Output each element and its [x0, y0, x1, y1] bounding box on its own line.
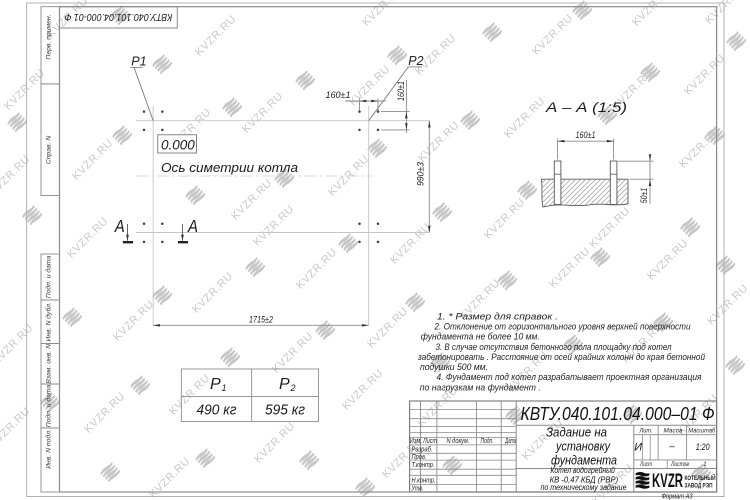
svg-text:P: P	[210, 376, 221, 393]
svg-text:Масштаб: Масштаб	[688, 427, 715, 435]
svg-text:160±1: 160±1	[576, 130, 596, 140]
svg-text:50±1: 50±1	[639, 188, 649, 204]
svg-text:490 кг: 490 кг	[197, 403, 237, 419]
svg-text:Масса: Масса	[664, 428, 683, 435]
svg-text:Н.контр.: Н.контр.	[412, 478, 436, 485]
svg-text:Подп.: Подп.	[481, 437, 494, 445]
svg-text:Справ. N: Справ. N	[46, 136, 53, 165]
svg-text:Инв. N дубл.: Инв. N дубл.	[45, 302, 53, 341]
svg-text:595 кг: 595 кг	[265, 403, 305, 419]
svg-text:1:20: 1:20	[696, 442, 710, 452]
svg-text:КВТУ.040.101.04.000–01 Ф: КВТУ.040.101.04.000–01 Ф	[521, 403, 715, 424]
svg-text:КОТЕЛЬНЫЙ: КОТЕЛЬНЫЙ	[685, 473, 716, 482]
svg-text:Пров.: Пров.	[412, 454, 427, 461]
svg-text:990±3: 990±3	[416, 162, 426, 186]
svg-text:Подп. и дата: Подп. и дата	[45, 256, 53, 299]
svg-text:P1: P1	[131, 55, 146, 69]
svg-text:Котел водогрейный: Котел водогрейный	[550, 466, 615, 475]
svg-text:Изм.: Изм.	[410, 438, 422, 445]
svg-text:Лист: Лист	[639, 461, 652, 468]
svg-text:подушки 500 мм.: подушки 500 мм.	[420, 362, 488, 372]
svg-text:Инв. N подл.: Инв. N подл.	[45, 429, 53, 469]
svg-text:А – А (1:5): А – А (1:5)	[545, 99, 627, 115]
svg-text:P2: P2	[408, 54, 423, 68]
svg-text:Задание на: Задание на	[546, 426, 607, 440]
svg-text:2: 2	[290, 383, 296, 393]
svg-text:Формат А3: Формат А3	[662, 492, 694, 500]
svg-text:Лист: Лист	[422, 438, 437, 445]
svg-text:Ось симетрии котла: Ось симетрии котла	[161, 160, 298, 175]
svg-text:И: И	[634, 441, 642, 453]
svg-text:Т.контр.: Т.контр.	[412, 462, 435, 469]
svg-text:1715±2: 1715±2	[249, 315, 273, 325]
svg-text:забетонировать . Расстояние о: забетонировать . Расстояние от осей край…	[417, 352, 705, 362]
svg-text:установку: установку	[555, 440, 611, 454]
svg-text:Листов: Листов	[670, 461, 689, 468]
svg-text:Разраб.: Разраб.	[412, 446, 433, 454]
svg-text:4. Фундамент под котел разраб: 4. Фундамент под котел разрабатывает про…	[437, 372, 702, 382]
svg-text:Взам. инв. N: Взам. инв. N	[46, 344, 53, 384]
svg-text:3. В случае отсутствия бетонн: 3. В случае отсутствия бетонного пола пл…	[436, 342, 673, 352]
svg-text:Подп. и дата: Подп. и дата	[45, 385, 53, 428]
svg-text:KVZR: KVZR	[652, 471, 683, 492]
svg-text:1: 1	[703, 461, 706, 468]
svg-text:по техническому задание: по техническому задание	[541, 483, 628, 492]
svg-text:2. Отклонение от горизонтальн: 2. Отклонение от горизонтального уровня …	[434, 322, 691, 332]
svg-text:A: A	[114, 216, 125, 236]
svg-text:ЗАВОД РЭП: ЗАВОД РЭП	[685, 483, 713, 490]
svg-text:Перв. примен.: Перв. примен.	[46, 14, 53, 59]
svg-text:P: P	[279, 376, 290, 393]
svg-text:по нагрузкам на фундамент .: по нагрузкам на фундамент .	[420, 382, 541, 392]
svg-text:КВТУ.040.101.04.000-01 Ф: КВТУ.040.101.04.000-01 Ф	[64, 11, 172, 22]
svg-text:1. * Размер для справок .: 1. * Размер для справок .	[437, 312, 558, 322]
svg-text:Дата: Дата	[505, 438, 517, 445]
svg-text:0.000: 0.000	[161, 138, 195, 153]
svg-text:160±1: 160±1	[326, 90, 351, 100]
svg-text:A: A	[187, 216, 198, 236]
svg-text:160±1: 160±1	[396, 81, 406, 101]
svg-text:1: 1	[222, 383, 227, 393]
svg-text:фундамента не более 10 мм.: фундамента не более 10 мм.	[421, 332, 540, 342]
svg-text:–: –	[668, 441, 675, 452]
svg-text:N докум.: N докум.	[447, 437, 470, 445]
svg-text:Лит.: Лит.	[639, 428, 653, 435]
svg-text:Утв.: Утв.	[411, 486, 424, 493]
